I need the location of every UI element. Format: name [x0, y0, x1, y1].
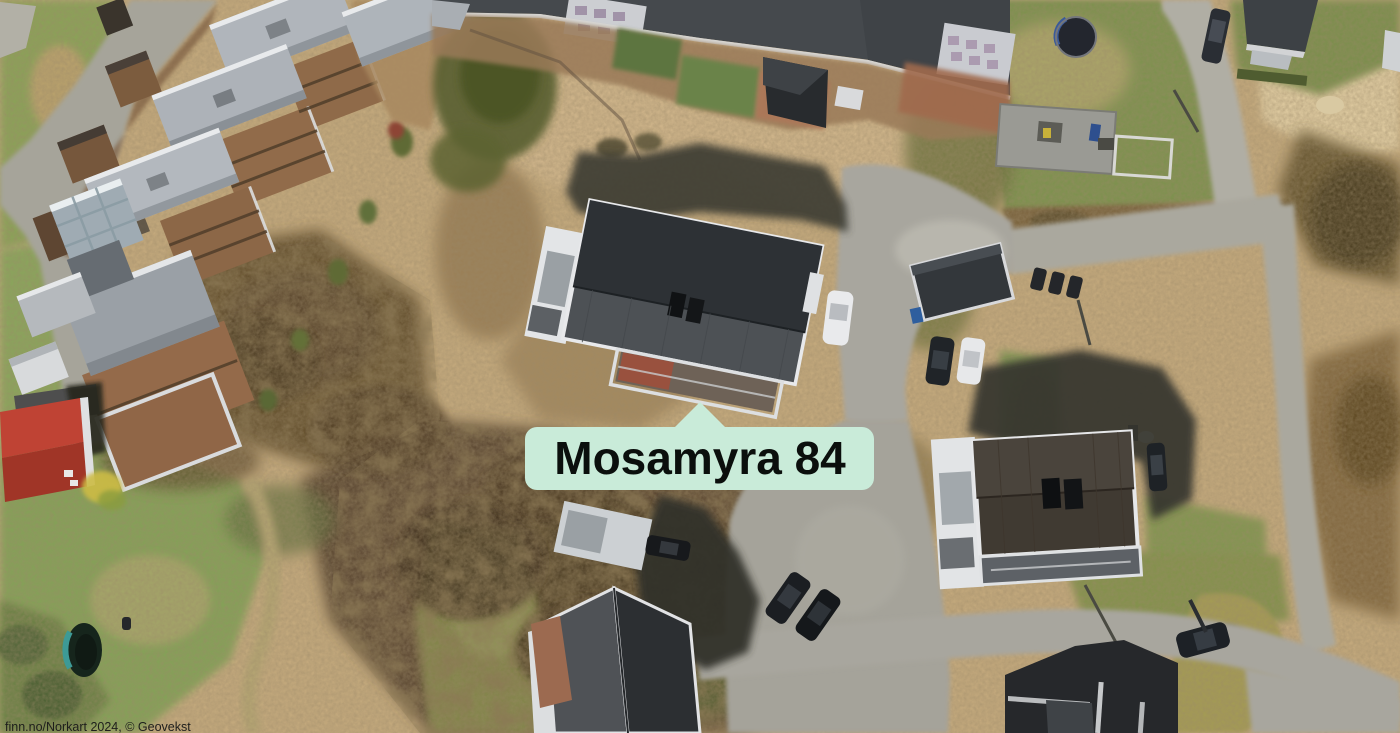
svg-text:finn.no/Norkart 2024, © Geovek: finn.no/Norkart 2024, © Geovekst — [5, 720, 191, 733]
svg-text:Mosamyra 84: Mosamyra 84 — [554, 432, 846, 484]
